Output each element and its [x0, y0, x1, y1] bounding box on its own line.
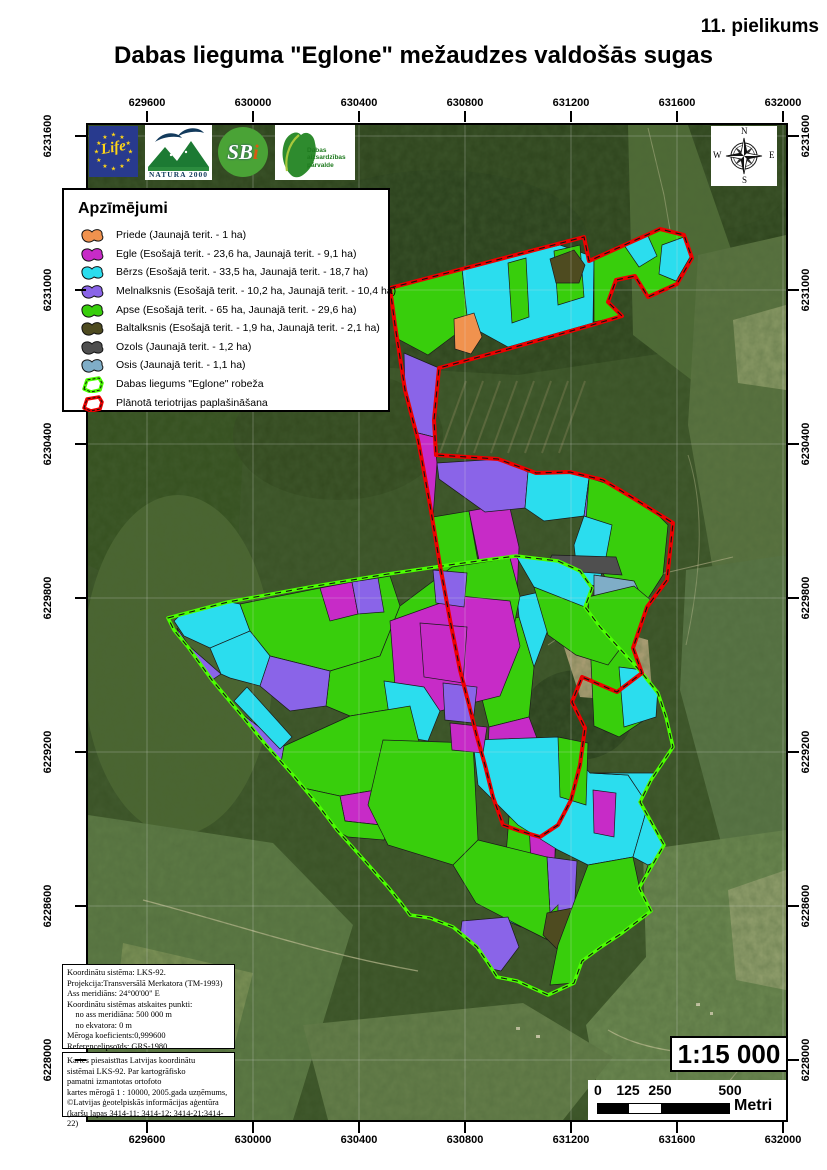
scale-unit-label: Metri	[734, 1097, 772, 1115]
scale-bar-number: 250	[648, 1082, 672, 1098]
svg-text:★: ★	[111, 132, 116, 139]
info-line: sistēmai LKS-92. Par kartogrāfisko	[67, 1067, 230, 1078]
x-tick-label-bottom: 630800	[435, 1134, 495, 1146]
x-tick-label-top: 631600	[647, 97, 707, 109]
x-tick-mark	[782, 111, 784, 122]
legend-item-priede: Priede (Jaunajā terit. - 1 ha)	[78, 226, 388, 245]
x-tick-label-bottom: 629600	[117, 1134, 177, 1146]
legend-swatch-ozols	[78, 338, 108, 356]
y-tick-label-left: 6228000	[42, 1030, 54, 1090]
x-tick-label-bottom: 632000	[753, 1134, 813, 1146]
species-polygon-berzs	[525, 472, 589, 521]
x-tick-mark	[146, 1122, 148, 1133]
legend-label-baltalksnis: Baltalksnis (Esošajā terit. - 1,9 ha, Ja…	[108, 322, 380, 334]
species-polygon-melnalksnis	[433, 570, 467, 607]
legend-item-reserve: Dabas liegums "Eglone" robeža	[78, 375, 388, 394]
info-line: Mēroga koeficients:0,999600	[67, 1031, 230, 1042]
legend-item-egle: Egle (Esošajā terit. - 23,6 ha, Jaunajā …	[78, 245, 388, 264]
x-tick-mark	[464, 1122, 466, 1133]
legend-item-ozols: Ozols (Jaunajā terit. - 1,2 ha)	[78, 338, 388, 357]
legend-label-melnalksnis: Melnalksnis (Esošajā terit. - 10,2 ha, J…	[108, 285, 396, 297]
legend-swatch-berzs	[78, 263, 108, 281]
info-line: kartes mērogā 1 : 10000, 2005.gada uzņēm…	[67, 1088, 230, 1099]
legend-swatch-apse	[78, 301, 108, 319]
legend-item-apse: Apse (Esošajā terit. - 65 ha, Jaunajā te…	[78, 300, 388, 319]
y-tick-mark	[788, 443, 799, 445]
y-tick-mark	[788, 597, 799, 599]
x-tick-label-top: 630400	[329, 97, 389, 109]
x-tick-mark	[570, 111, 572, 122]
svg-text:★: ★	[119, 163, 124, 170]
compass-w-label: W	[713, 150, 722, 160]
x-tick-label-bottom: 630000	[223, 1134, 283, 1146]
coordinate-system-info: Koordinātu sistēma: LKS-92.Projekcija:Tr…	[62, 964, 235, 1049]
legend-swatch-baltalksnis	[78, 319, 108, 337]
y-tick-mark	[75, 289, 86, 291]
legend-item-berzs: Bērzs (Esošajā terit. - 33,5 ha, Jaunajā…	[78, 263, 388, 282]
page: 11. pielikums Dabas lieguma "Eglone" mež…	[0, 0, 827, 1170]
y-tick-mark	[75, 597, 86, 599]
legend-item-baltalksnis: Baltalksnis (Esošajā terit. - 1,9 ha, Ja…	[78, 319, 388, 338]
scale-bar: Metri 0125250500	[588, 1080, 786, 1120]
y-tick-mark	[75, 751, 86, 753]
sbi-logo: SBi	[218, 127, 268, 177]
info-line: Kartes piesaistītas Latvijas koordinātu	[67, 1056, 230, 1067]
legend-swatch-extension	[78, 394, 108, 412]
scale-bar-number: 500	[718, 1082, 742, 1098]
compass-e-label: E	[769, 150, 775, 160]
legend-label-reserve: Dabas liegums "Eglone" robeža	[108, 378, 264, 390]
x-tick-label-bottom: 631200	[541, 1134, 601, 1146]
y-tick-mark	[788, 289, 799, 291]
svg-text:★: ★	[102, 134, 107, 141]
info-line: Koordinātu sistēmas atskaites punkti:	[67, 1000, 230, 1011]
legend-swatch-osis	[78, 356, 108, 374]
natura2000-logo: NATURA 2000	[145, 125, 212, 180]
y-tick-label-left: 6229200	[42, 722, 54, 782]
x-tick-mark	[252, 111, 254, 122]
legend-label-egle: Egle (Esošajā terit. - 23,6 ha, Jaunajā …	[108, 248, 356, 260]
species-polygon-apse	[508, 258, 529, 323]
info-line: Koordinātu sistēma: LKS-92.	[67, 968, 230, 979]
legend-swatch-priede	[78, 226, 108, 244]
scale-bar-number: 125	[616, 1082, 640, 1098]
sbi-letters: SB	[227, 140, 253, 164]
y-tick-mark	[788, 1059, 799, 1061]
species-polygon-melnalksnis	[352, 578, 384, 614]
y-tick-label-right: 6229800	[800, 568, 812, 628]
y-tick-label-left: 6231000	[42, 260, 54, 320]
svg-text:★: ★	[126, 157, 131, 164]
legend-label-osis: Osis (Jaunajā terit. - 1,1 ha)	[108, 359, 246, 371]
legend-item-osis: Osis (Jaunajā terit. - 1,1 ha)	[78, 356, 388, 375]
info-line: Projekcija:Transversālā Merkatora (TM-19…	[67, 979, 230, 990]
x-tick-mark	[358, 111, 360, 122]
legend-label-apse: Apse (Esošajā terit. - 65 ha, Jaunajā te…	[108, 304, 356, 316]
y-tick-mark	[75, 905, 86, 907]
x-tick-mark	[464, 111, 466, 122]
info-line: Ass meridiāns: 24°00'00" E	[67, 989, 230, 1000]
y-tick-mark	[75, 443, 86, 445]
x-tick-label-top: 631200	[541, 97, 601, 109]
scale-ratio: 1:15 000	[670, 1036, 788, 1072]
x-tick-mark	[252, 1122, 254, 1133]
natura2000-label: NATURA 2000	[145, 170, 212, 179]
legend-swatch-melnalksnis	[78, 282, 108, 300]
svg-text:★: ★	[102, 163, 107, 170]
x-tick-mark	[570, 1122, 572, 1133]
x-tick-label-top: 629600	[117, 97, 177, 109]
x-tick-label-bottom: 631600	[647, 1134, 707, 1146]
y-tick-mark	[788, 905, 799, 907]
x-tick-label-bottom: 630400	[329, 1134, 389, 1146]
species-polygon-egle	[593, 790, 616, 837]
y-tick-label-right: 6228000	[800, 1030, 812, 1090]
eu-life-logo: ★★★★★★★★★★★★ Life	[89, 126, 138, 177]
sbi-i-letter: i	[253, 140, 259, 164]
legend-label-berzs: Bērzs (Esošajā terit. - 33,5 ha, Jaunajā…	[108, 266, 368, 278]
compass-n-label: N	[741, 126, 748, 136]
legend-swatch-reserve	[78, 375, 108, 393]
legend-label-extension: Plānotā teriotrijas paplašināšana	[108, 397, 268, 409]
x-tick-mark	[676, 111, 678, 122]
page-title: Dabas lieguma "Eglone" mežaudzes valdošā…	[0, 42, 827, 70]
nature-protection-board-label: Dabasaizsardzībaspārvalde	[307, 147, 353, 169]
y-tick-mark	[75, 135, 86, 137]
scale-bar-number: 0	[594, 1082, 618, 1098]
info-line: no ekvatora: 0 m	[67, 1021, 230, 1032]
legend-title: Apzīmējumi	[78, 200, 388, 218]
legend-label-ozols: Ozols (Jaunajā terit. - 1,2 ha)	[108, 341, 251, 353]
y-tick-mark	[788, 135, 799, 137]
y-tick-label-left: 6228600	[42, 876, 54, 936]
y-tick-mark	[75, 1059, 86, 1061]
y-tick-label-right: 6231600	[800, 106, 812, 166]
y-tick-label-left: 6230400	[42, 414, 54, 474]
y-tick-label-right: 6228600	[800, 876, 812, 936]
legend-item-melnalksnis: Melnalksnis (Esošajā terit. - 10,2 ha, J…	[78, 282, 388, 301]
x-tick-label-top: 630800	[435, 97, 495, 109]
y-tick-label-left: 6229800	[42, 568, 54, 628]
x-tick-mark	[782, 1122, 784, 1133]
map-source-info: Kartes piesaistītas Latvijas koordinātus…	[62, 1052, 235, 1117]
annex-label: 11. pielikums	[701, 16, 819, 38]
info-line: no ass meridiāna: 500 000 m	[67, 1010, 230, 1021]
x-tick-mark	[146, 111, 148, 122]
y-tick-label-right: 6231000	[800, 260, 812, 320]
legend: Apzīmējumi Priede (Jaunajā terit. - 1 ha…	[62, 188, 390, 412]
y-tick-label-right: 6230400	[800, 414, 812, 474]
y-tick-label-right: 6229200	[800, 722, 812, 782]
legend-label-priede: Priede (Jaunajā terit. - 1 ha)	[108, 229, 246, 241]
info-line: pamatni izmantotas ortofoto	[67, 1077, 230, 1088]
x-tick-label-top: 630000	[223, 97, 283, 109]
x-tick-mark	[358, 1122, 360, 1133]
compass-rose: N E S W	[711, 126, 777, 186]
svg-text:★: ★	[111, 166, 116, 173]
info-line: ©Latvijas ģeotelpiskās informācijas aģen…	[67, 1098, 230, 1109]
info-line: (karšu lapas 3414-11; 3414-12; 3414-21;3…	[67, 1109, 230, 1130]
info-line: Referencelipsoīds: GRS-1980	[67, 1042, 230, 1053]
scale-bar-graphic	[597, 1103, 730, 1114]
nature-protection-board-logo: Dabasaizsardzībaspārvalde	[275, 125, 355, 180]
legend-swatch-egle	[78, 245, 108, 263]
y-tick-mark	[788, 751, 799, 753]
y-tick-label-left: 6231600	[42, 106, 54, 166]
compass-s-label: S	[742, 175, 747, 185]
x-tick-mark	[676, 1122, 678, 1133]
legend-item-extension: Plānotā teriotrijas paplašināšana	[78, 393, 388, 412]
